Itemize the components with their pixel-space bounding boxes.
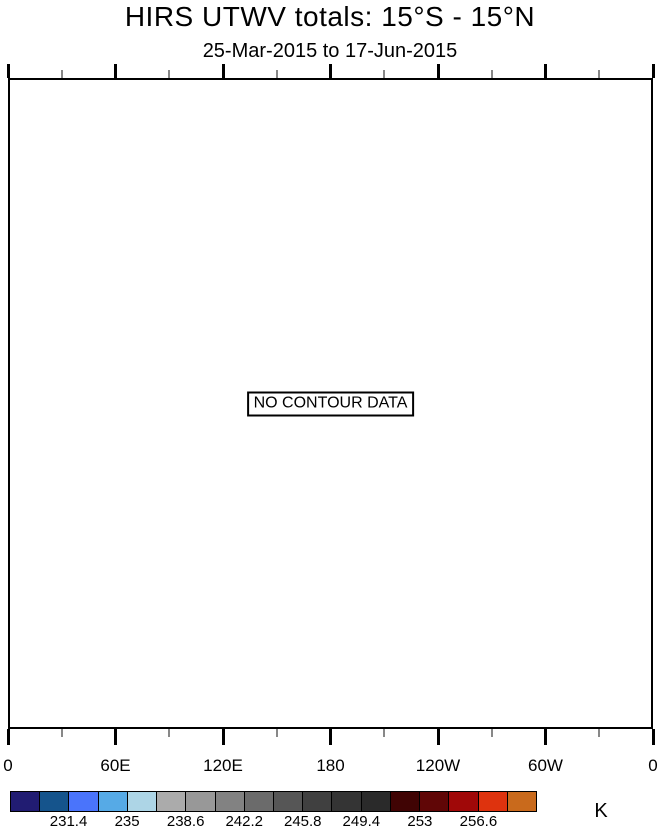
x-axis-major-tick-bottom bbox=[544, 729, 547, 745]
x-axis-major-tick-top bbox=[329, 64, 332, 78]
x-axis-major-tick-bottom bbox=[222, 729, 225, 745]
x-axis-minor-tick-bottom bbox=[168, 729, 170, 737]
x-axis-major-tick-bottom bbox=[652, 729, 655, 745]
colorbar-cell bbox=[479, 792, 508, 811]
x-axis-minor-tick-top bbox=[383, 70, 385, 78]
colorbar-cell bbox=[449, 792, 478, 811]
x-axis-minor-tick-bottom bbox=[383, 729, 385, 737]
x-axis-major-tick-top bbox=[437, 64, 440, 78]
x-axis-minor-tick-bottom bbox=[61, 729, 63, 737]
x-axis-major-tick-bottom bbox=[7, 729, 10, 745]
x-axis-major-tick-top bbox=[7, 64, 10, 78]
x-axis-tick-label: 0 bbox=[0, 756, 50, 775]
colorbar-cell bbox=[303, 792, 332, 811]
colorbar-tick-label: 242.2 bbox=[212, 813, 276, 830]
x-axis-major-tick-bottom bbox=[437, 729, 440, 745]
colorbar-tick-label: 245.8 bbox=[271, 813, 335, 830]
colorbar-cell bbox=[391, 792, 420, 811]
colorbar-tick-label: 231.4 bbox=[37, 813, 101, 830]
colorbar-cell bbox=[245, 792, 274, 811]
x-axis-major-tick-top bbox=[222, 64, 225, 78]
colorbar-cell bbox=[11, 792, 40, 811]
chart-title: HIRS UTWV totals: 15°S - 15°N bbox=[0, 2, 660, 32]
x-axis-minor-tick-top bbox=[598, 70, 600, 78]
x-axis-tick-label: 0 bbox=[611, 756, 660, 775]
colorbar-cell bbox=[157, 792, 186, 811]
colorbar-cell bbox=[508, 792, 536, 811]
x-axis-minor-tick-top bbox=[276, 70, 278, 78]
colorbar-cell bbox=[128, 792, 157, 811]
colorbar-cell bbox=[332, 792, 361, 811]
x-axis-minor-tick-bottom bbox=[276, 729, 278, 737]
x-axis-tick-label: 120W bbox=[396, 756, 480, 775]
colorbar-tick-label: 256.6 bbox=[446, 813, 510, 830]
figure: HIRS UTWV totals: 15°S - 15°N 25-Mar-201… bbox=[0, 0, 660, 830]
colorbar-cell bbox=[186, 792, 215, 811]
colorbar-tick-label: 249.4 bbox=[329, 813, 393, 830]
x-axis-minor-tick-top bbox=[168, 70, 170, 78]
x-axis-tick-label: 180 bbox=[289, 756, 373, 775]
x-axis-major-tick-top bbox=[544, 64, 547, 78]
colorbar-cell bbox=[40, 792, 69, 811]
no-contour-data-box: NO CONTOUR DATA bbox=[247, 391, 415, 416]
x-axis-minor-tick-top bbox=[61, 70, 63, 78]
x-axis-major-tick-top bbox=[652, 64, 655, 78]
chart-subtitle: 25-Mar-2015 to 17-Jun-2015 bbox=[0, 40, 660, 62]
plot-area: NO CONTOUR DATA bbox=[8, 78, 653, 729]
colorbar-unit-label: K bbox=[581, 800, 621, 822]
colorbar-cell bbox=[99, 792, 128, 811]
x-axis-minor-tick-top bbox=[491, 70, 493, 78]
colorbar-tick-label: 238.6 bbox=[154, 813, 218, 830]
x-axis-major-tick-bottom bbox=[114, 729, 117, 745]
colorbar-tick-label: 253 bbox=[388, 813, 452, 830]
x-axis-tick-label: 60E bbox=[74, 756, 158, 775]
colorbar bbox=[10, 791, 537, 812]
x-axis-major-tick-bottom bbox=[329, 729, 332, 745]
x-axis-tick-label: 60W bbox=[504, 756, 588, 775]
colorbar-tick-label: 235 bbox=[95, 813, 159, 830]
colorbar-cell bbox=[362, 792, 391, 811]
colorbar-cell bbox=[420, 792, 449, 811]
x-axis-tick-label: 120E bbox=[181, 756, 265, 775]
x-axis-major-tick-top bbox=[114, 64, 117, 78]
x-axis-minor-tick-bottom bbox=[598, 729, 600, 737]
colorbar-cell bbox=[69, 792, 98, 811]
no-contour-data-label: NO CONTOUR DATA bbox=[254, 394, 408, 411]
colorbar-cell bbox=[274, 792, 303, 811]
colorbar-cell bbox=[216, 792, 245, 811]
x-axis-minor-tick-bottom bbox=[491, 729, 493, 737]
